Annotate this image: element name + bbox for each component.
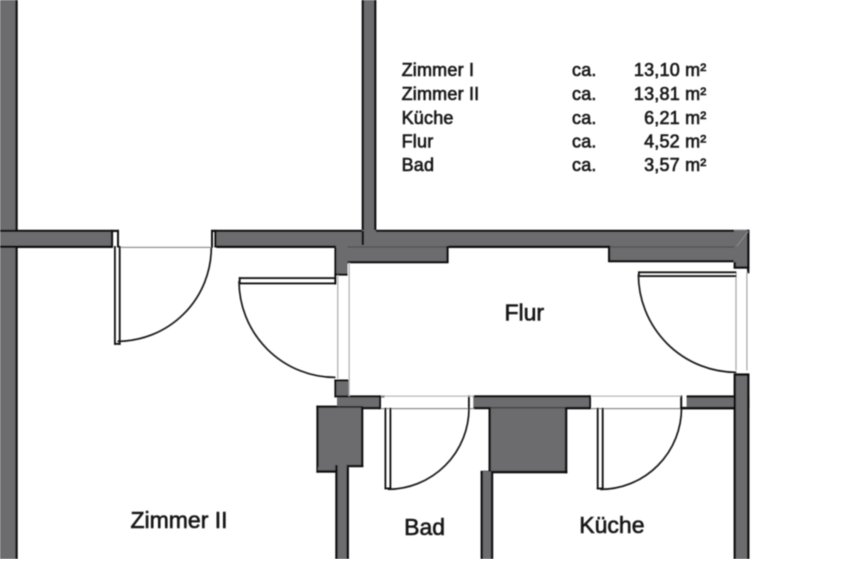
svg-text:3,57 m²: 3,57 m²: [644, 155, 706, 175]
svg-text:Küche: Küche: [402, 108, 454, 128]
svg-text:Zimmer II: Zimmer II: [402, 84, 480, 104]
svg-text:Flur: Flur: [504, 300, 544, 326]
svg-text:ca.: ca.: [572, 60, 597, 80]
svg-text:13,10 m²: 13,10 m²: [634, 60, 707, 80]
svg-text:Küche: Küche: [579, 512, 644, 538]
svg-text:ca.: ca.: [572, 132, 597, 152]
svg-text:13,81 m²: 13,81 m²: [634, 84, 707, 104]
svg-text:Zimmer I: Zimmer I: [402, 60, 475, 80]
svg-text:Bad: Bad: [402, 155, 435, 175]
svg-text:Bad: Bad: [404, 514, 445, 540]
svg-text:ca.: ca.: [572, 108, 597, 128]
svg-text:Zimmer II: Zimmer II: [130, 507, 227, 533]
svg-text:Flur: Flur: [402, 132, 434, 152]
svg-text:ca.: ca.: [572, 84, 597, 104]
svg-text:ca.: ca.: [572, 155, 597, 175]
svg-text:4,52 m²: 4,52 m²: [644, 132, 706, 152]
svg-text:6,21 m²: 6,21 m²: [644, 108, 706, 128]
